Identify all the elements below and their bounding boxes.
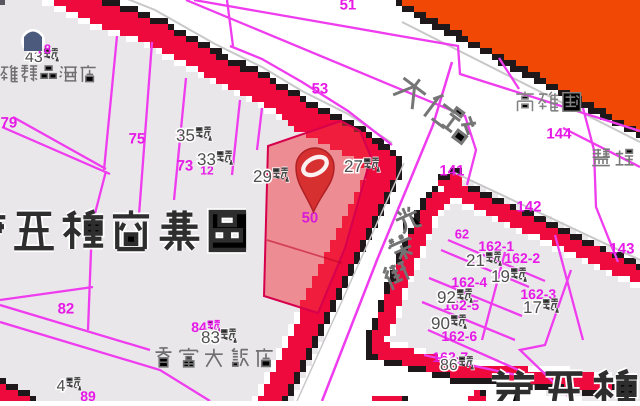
svg-text:82: 82: [58, 300, 75, 317]
svg-text:35: 35: [176, 126, 195, 145]
svg-text:73: 73: [177, 157, 194, 174]
svg-text:83: 83: [201, 328, 220, 347]
svg-text:144: 144: [546, 125, 572, 142]
svg-text:17: 17: [523, 298, 542, 317]
svg-text:89: 89: [80, 388, 96, 401]
svg-text:92: 92: [437, 288, 456, 307]
svg-text:142: 142: [516, 198, 541, 215]
svg-text:86: 86: [440, 357, 458, 374]
svg-text:75: 75: [129, 130, 146, 147]
svg-text:162-2: 162-2: [504, 250, 540, 266]
svg-text:62: 62: [455, 227, 469, 242]
svg-text:29: 29: [253, 167, 272, 186]
svg-text:79: 79: [1, 114, 18, 131]
svg-text:19: 19: [491, 267, 510, 286]
svg-text:50: 50: [302, 209, 319, 226]
svg-text:51: 51: [340, 0, 357, 13]
svg-text:27: 27: [344, 157, 363, 176]
svg-text:143: 143: [609, 240, 634, 257]
svg-text:162-4: 162-4: [451, 274, 487, 290]
svg-text:33: 33: [197, 150, 216, 169]
svg-text:141: 141: [439, 162, 464, 179]
svg-text:21: 21: [466, 251, 485, 270]
svg-text:4: 4: [57, 378, 66, 395]
svg-text:53: 53: [312, 80, 329, 97]
svg-text:90: 90: [431, 314, 450, 333]
